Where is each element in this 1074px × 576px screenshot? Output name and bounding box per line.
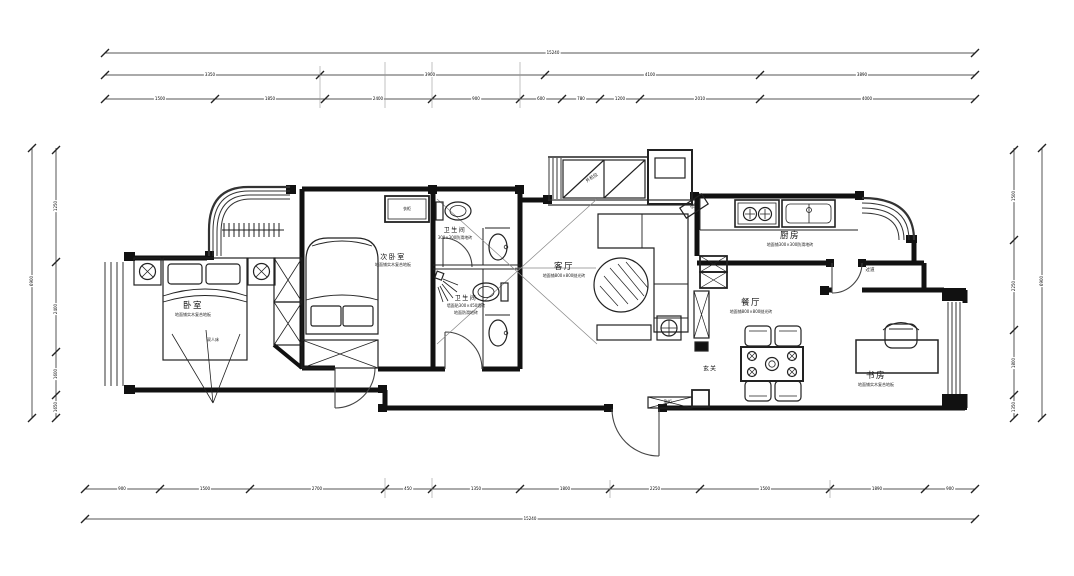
dim-right-3: 1350 [1012,401,1016,413]
shoe-cabinet-label: 鞋柜 [664,399,672,405]
study-name: 书房 [858,372,894,381]
entry-label: 玄关 [703,364,717,373]
round-rug [594,258,648,312]
dim-right-2: 1800 [1012,357,1016,369]
dim-top3-0: 1500 [154,97,166,101]
walls [130,189,965,408]
bathroom-bottom-spec2: 地面防滑地砖 [447,310,486,316]
dimension-ticks [28,49,1046,523]
room-label-dining: 餐厅 地面铺800×800抛光砖 [730,299,773,315]
dining-table [741,347,803,381]
bathroom-top-spec: 300×300防滑地砖 [438,235,473,241]
kitchen-door [832,263,862,293]
dim-bot-9: 900 [945,487,955,491]
stove [735,200,779,227]
dim-right-total: 6900 [1040,275,1044,287]
dim-bot-6: 2250 [649,487,661,491]
dim-top2-1: 3900 [424,73,436,77]
dim-top3-2: 2400 [372,97,384,101]
dimension-lines [32,53,1042,519]
dim-left-total: 6900 [30,275,34,287]
dining-spec: 地面铺800×800抛光砖 [730,309,773,315]
bedroom-spec: 地面铺实木复合地板 [175,312,211,318]
entry-door [612,409,659,456]
dim-bot-7: 1500 [759,487,771,491]
dim-top2-2: 4100 [644,73,656,77]
extension-guides [320,62,830,498]
dim-top3-6: 1200 [614,97,626,101]
dining-pier [694,291,709,351]
dim-bot-2: 2700 [311,487,323,491]
bedroom-name: 卧室 [175,302,211,311]
dim-top2-0: 3350 [204,73,216,77]
dim-right-0: 1500 [1012,190,1016,202]
room-label-study: 书房 地面铺实木复合地板 [858,372,894,388]
wardrobe-tall [274,258,302,345]
toilet-top [436,202,471,220]
radiator [222,223,284,237]
dim-left-0: 1250 [54,200,58,212]
furniture-group [134,194,938,408]
bathroom-bottom-spec: 墙面贴300×450墙砖 [447,303,486,309]
plan-linework [0,0,1074,576]
dim-top3-8: 4000 [861,97,873,101]
floor-plan: 卧室 地面铺实木复合地板 次卧室 地面铺实木复合地板 卫生间 300×300防滑… [0,0,1074,576]
second-bed [306,238,378,334]
dim-bot-5: 1800 [559,487,571,491]
bathroom-top-name: 卫生间 [438,228,473,234]
dim-top2-3: 3890 [856,73,868,77]
bed-label: 双人床 [207,337,219,343]
dim-bot-1: 1500 [199,487,211,491]
balcony-window [549,158,561,199]
living-name: 客厅 [543,263,586,272]
dim-bot-0: 900 [117,487,127,491]
study-spec: 地面铺实木复合地板 [858,382,894,388]
wardrobe-label: 衣柜 [403,206,411,212]
room-label-bathroom-top: 卫生间 300×300防滑地砖 [438,228,473,241]
bathroom-bottom-name: 卫生间 [447,296,486,302]
second-bedroom-name: 次卧室 [375,254,411,261]
dim-bot-4: 1350 [470,487,482,491]
desk-chair [883,323,919,349]
bath-bottom-door [445,332,482,369]
dim-left-3: 1650 [54,401,58,413]
dim-bot-8: 1890 [871,487,883,491]
dim-top3-1: 1850 [264,97,276,101]
kitchen-spec: 地面铺300×300防滑地砖 [767,242,814,248]
nightstand-right [248,258,275,285]
desk [856,340,938,373]
sink-bottom [489,320,508,346]
room-label-bathroom-bottom: 卫生间 墙面贴300×450墙砖 地面防滑地砖 [447,296,486,316]
bath-top-door [443,238,472,267]
dim-top3-3: 900 [471,97,481,101]
dim-left-1: 2400 [54,303,58,315]
sink-top [489,234,508,260]
dining-name: 餐厅 [730,299,773,308]
shoe-cabinet [648,390,709,408]
dim-bottom-total: 15240 [523,517,538,521]
dim-top3-7: 2010 [694,97,706,101]
double-bed [163,258,247,403]
dim-top-total: 15240 [546,51,561,55]
wardrobe-chest [302,340,378,368]
floor-lamp [657,316,681,340]
bedroom-window [105,262,123,386]
dim-top3-5: 780 [576,97,586,101]
living-spec: 地面铺800×800抛光砖 [543,273,586,279]
room-label-bedroom: 卧室 地面铺实木复合地板 [175,302,211,318]
wall-piers [124,185,967,412]
nightstand-left [134,258,161,285]
room-label-living: 客厅 地面铺800×800抛光砖 [543,263,586,279]
kitchen-sink [782,200,835,227]
study-window [948,302,960,394]
dim-top3-4: 600 [536,97,546,101]
dining-chairs [745,326,801,401]
dim-right-1: 2250 [1012,280,1016,292]
dim-left-2: 1600 [54,368,58,380]
sofa [598,214,688,332]
corridor-label: 过道 [866,267,875,273]
balcony-structure [548,150,692,204]
second-bedroom-spec: 地面铺实木复合地板 [375,262,411,268]
coffee-table [597,325,651,340]
dim-bot-3: 450 [403,487,413,491]
room-label-second-bedroom: 次卧室 地面铺实木复合地板 [375,254,411,268]
kitchen-name: 厨房 [767,232,814,241]
room-label-kitchen: 厨房 地面铺300×300防滑地砖 [767,232,814,248]
